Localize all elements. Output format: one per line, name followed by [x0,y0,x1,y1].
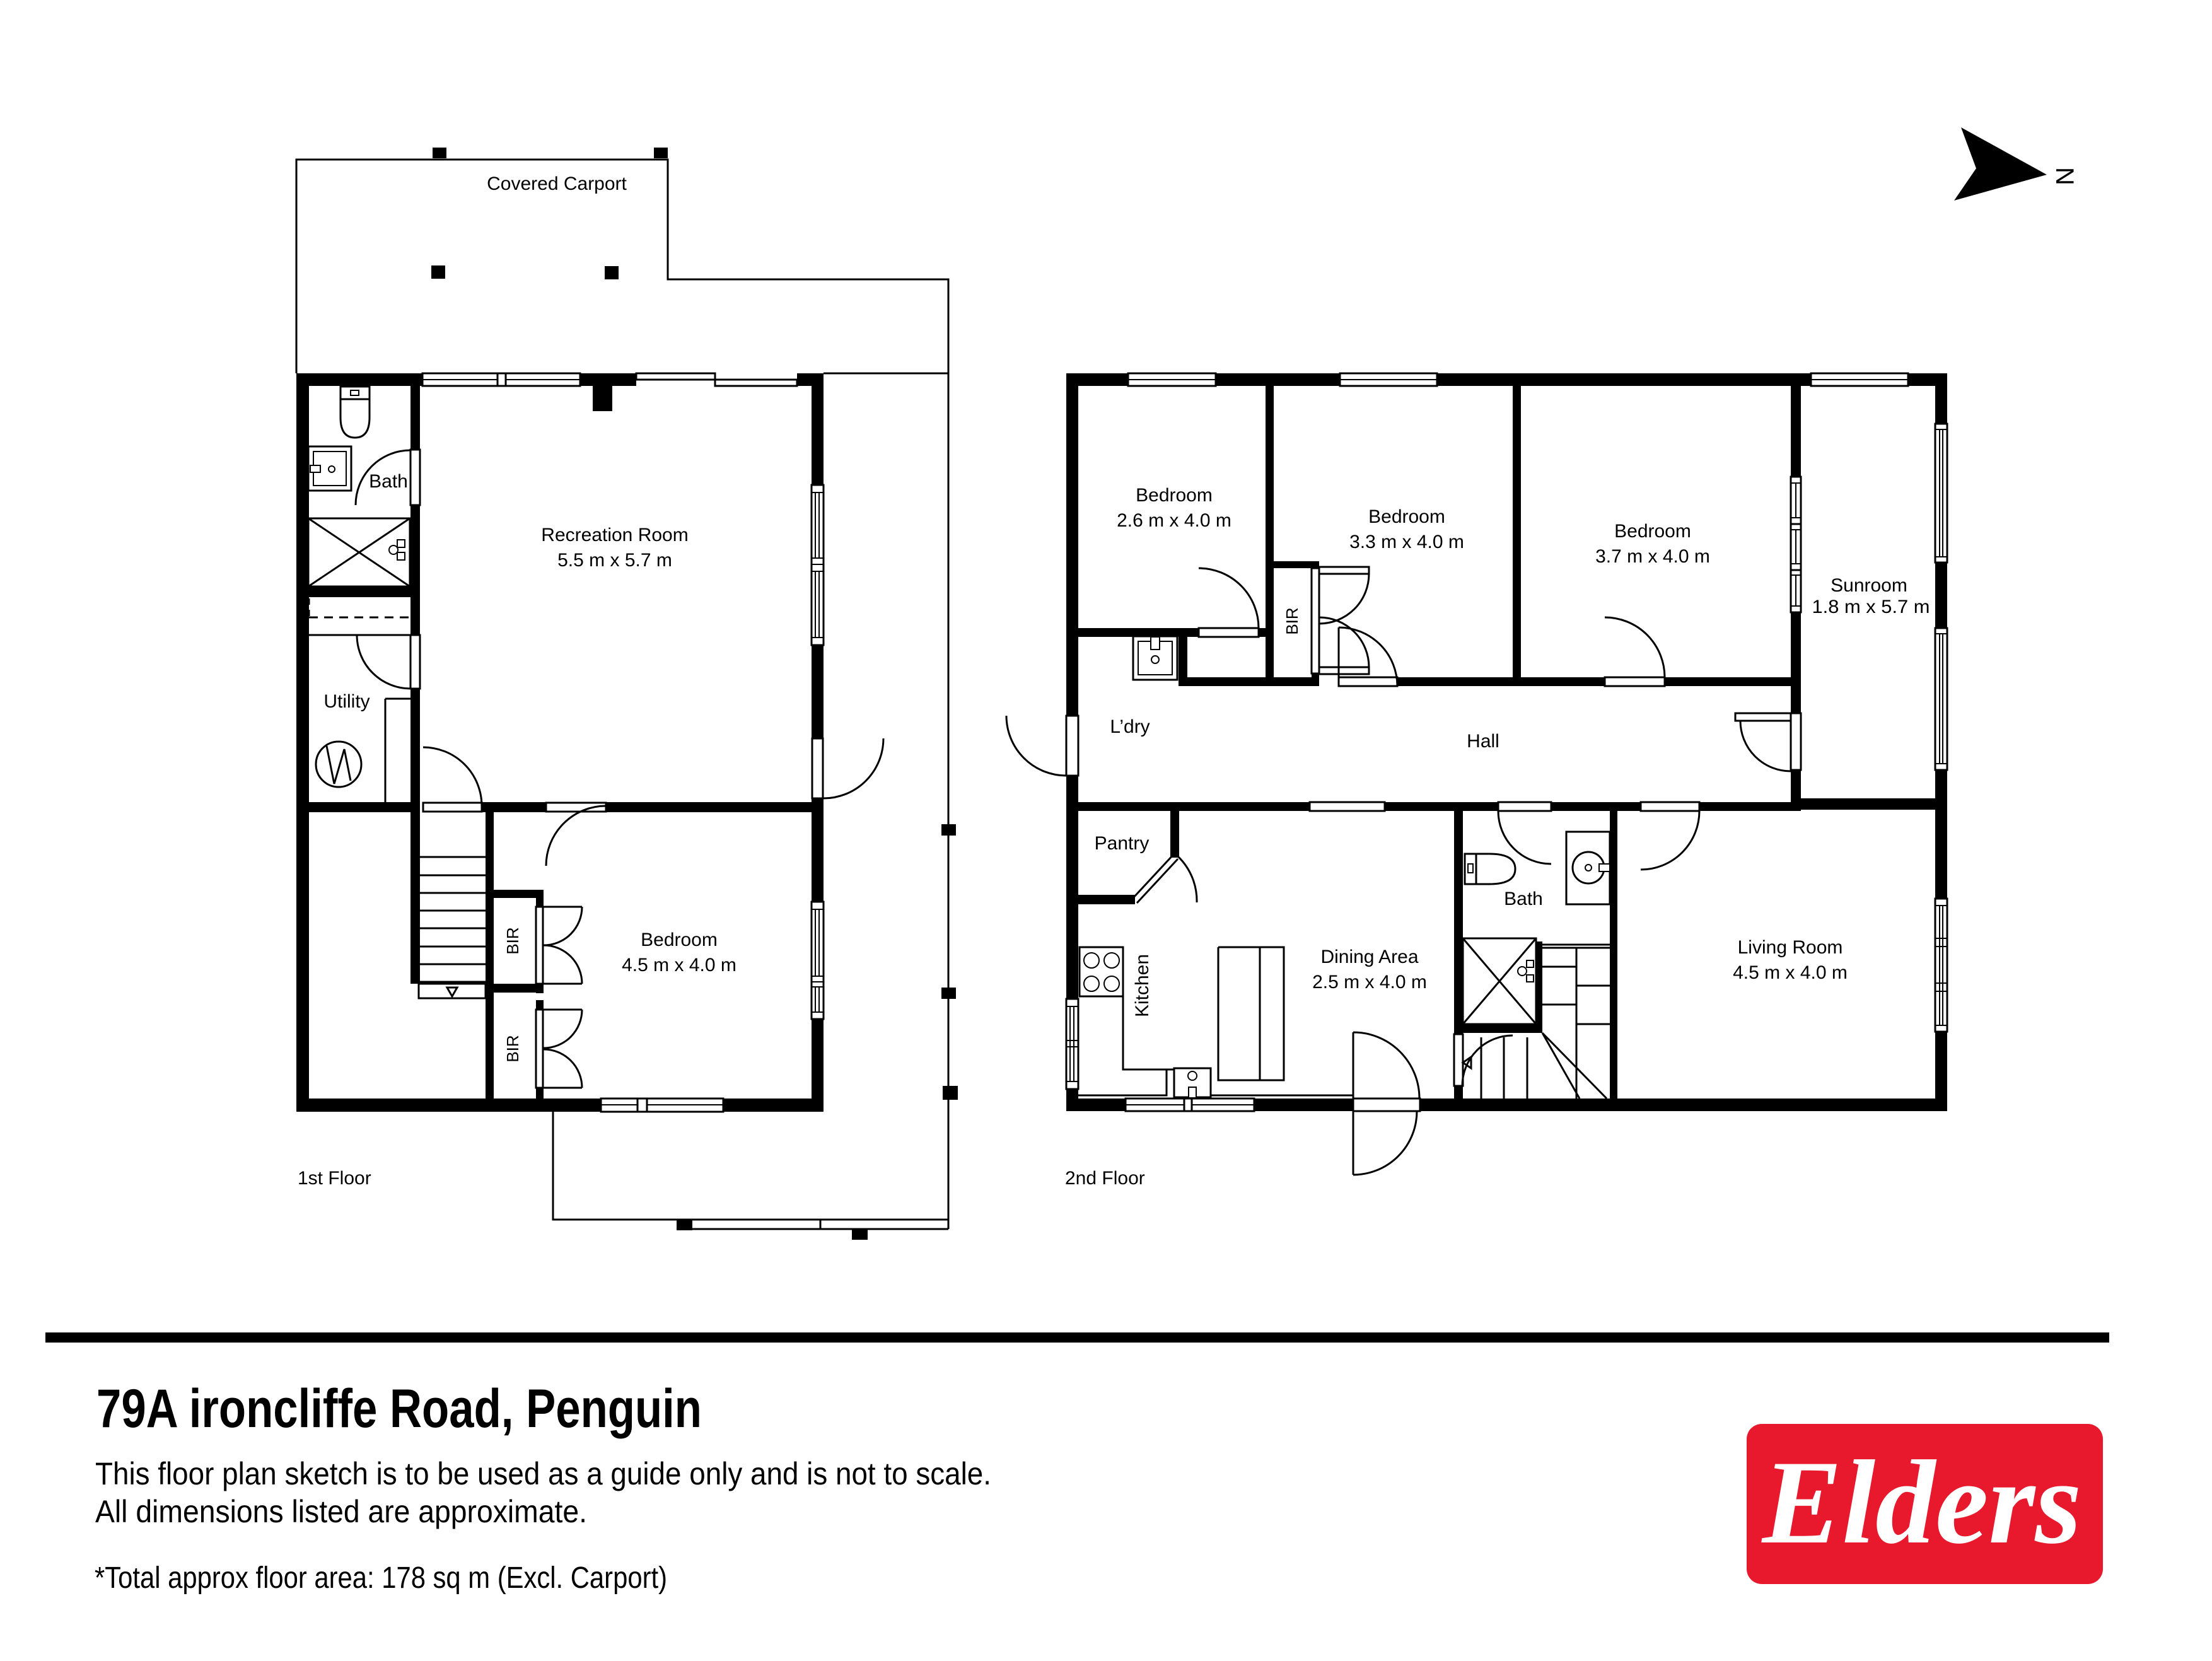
svg-text:4.5 m x 4.0 m: 4.5 m x 4.0 m [622,955,736,976]
svg-text:5.5 m x 5.7 m: 5.5 m x 5.7 m [557,550,672,571]
svg-text:Sunroom: Sunroom [1831,575,1907,596]
svg-text:Bath: Bath [369,471,408,492]
svg-text:1st Floor: 1st Floor [298,1168,371,1189]
svg-text:3.3 m x 4.0 m: 3.3 m x 4.0 m [1349,532,1464,552]
svg-text:Dining Area: Dining Area [1320,947,1418,967]
svg-text:BIR: BIR [1283,607,1301,634]
svg-text:Pantry: Pantry [1095,833,1150,854]
svg-text:2.5 m x 4.0 m: 2.5 m x 4.0 m [1312,972,1427,993]
svg-text:2nd Floor: 2nd Floor [1065,1168,1145,1189]
svg-text:Bedroom: Bedroom [1136,485,1213,506]
svg-text:3.7 m x 4.0 m: 3.7 m x 4.0 m [1595,546,1710,567]
svg-text:BIR: BIR [503,927,522,954]
svg-text:Covered Carport: Covered Carport [487,173,627,194]
svg-text:2.6 m x 4.0 m: 2.6 m x 4.0 m [1117,510,1231,531]
svg-text:All dimensions listed are appr: All dimensions listed are approximate. [95,1494,587,1529]
svg-text:Kitchen: Kitchen [1132,954,1153,1017]
svg-text:Bath: Bath [1504,889,1543,909]
svg-text:Recreation Room: Recreation Room [541,525,688,545]
svg-text:Hall: Hall [1467,731,1499,752]
svg-text:*Total approx floor area: 178: *Total approx floor area: 178 sq m (Excl… [95,1561,667,1595]
svg-text:Bedroom: Bedroom [1368,506,1445,527]
svg-text:Bedroom: Bedroom [641,930,718,950]
svg-text:Elders: Elders [1761,1437,2082,1569]
svg-text:1.8 m x 5.7 m: 1.8 m x 5.7 m [1812,597,1930,617]
svg-text:Bedroom: Bedroom [1614,521,1691,542]
svg-text:L’dry: L’dry [1110,716,1150,737]
svg-text:Utility: Utility [323,691,370,712]
svg-text:N: N [2051,167,2078,185]
svg-text:4.5 m x 4.0 m: 4.5 m x 4.0 m [1733,962,1848,983]
svg-text:Living Room: Living Room [1738,937,1843,958]
svg-text:BIR: BIR [503,1035,522,1062]
svg-text:This floor plan sketch is to b: This floor plan sketch is to be used as … [95,1456,991,1491]
svg-text:79A ironcliffe Road, Penguin: 79A ironcliffe Road, Penguin [96,1378,702,1439]
